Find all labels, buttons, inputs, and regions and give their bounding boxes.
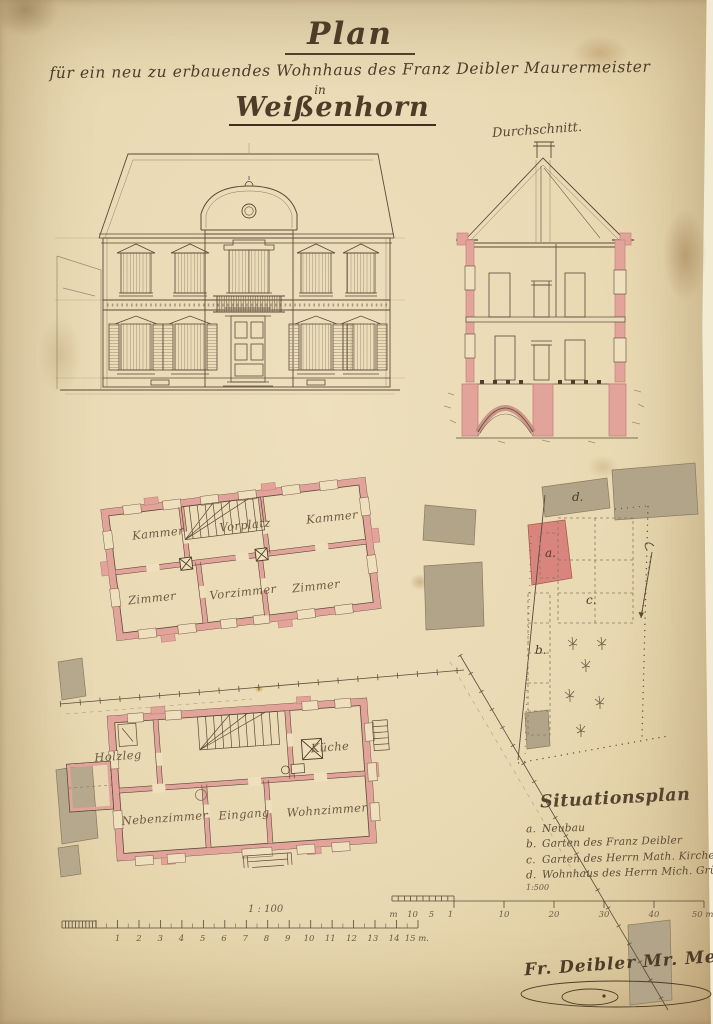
scale-tick-label: 8 bbox=[256, 934, 277, 944]
scale-tick-label: 30 bbox=[579, 910, 629, 920]
scale-tick-label: 13 bbox=[362, 934, 383, 944]
scale-tick-label: 10 bbox=[479, 910, 529, 920]
section-cellar bbox=[444, 384, 644, 443]
room-label-kueche: Küche bbox=[310, 739, 349, 756]
scale-tick-label: 10 bbox=[298, 934, 319, 944]
section-chimney bbox=[533, 142, 555, 158]
legend-item-a: a.Neubau bbox=[526, 819, 712, 836]
scale-tick-label: 5 bbox=[192, 934, 213, 944]
title-town-word: Weißenhorn bbox=[229, 92, 435, 126]
signature-block: Fr. Deibler Mr. Meister bbox=[516, 946, 713, 1018]
garden-trees bbox=[565, 637, 606, 737]
ground-plan-stairs bbox=[197, 711, 279, 750]
scanned-plan-page: { "page": { "title_word": "Plan", "subti… bbox=[0, 0, 713, 1024]
signature-flourish bbox=[516, 974, 713, 1018]
plan-scale-tick-labels: 123456789101112131415 m. bbox=[107, 934, 429, 944]
scale-tick-label: 3 bbox=[150, 934, 171, 944]
site-plan-drawing: a. b. c. d. bbox=[418, 448, 713, 1018]
facade-ground-windows bbox=[103, 308, 390, 386]
scale-tick-label: 20 bbox=[529, 910, 579, 920]
plan-scale-label: 1 : 100 bbox=[248, 904, 283, 915]
exterior-stair bbox=[372, 720, 389, 751]
ground-floor-plan-drawing bbox=[52, 652, 412, 892]
cross-section-drawing bbox=[438, 138, 662, 448]
scale-tick-label: 1 bbox=[441, 910, 460, 920]
page-title: Plan bbox=[0, 16, 700, 52]
facade-upper-windows bbox=[117, 240, 379, 296]
scale-tick-label: 1 bbox=[107, 934, 128, 944]
legend-scale-note: 1:500 bbox=[526, 883, 712, 892]
scale-tick-label: 2 bbox=[128, 934, 149, 944]
scale-tick-label: 9 bbox=[277, 934, 298, 944]
legend-item-b: b.Garten des Franz Deibler bbox=[526, 834, 712, 851]
legend-item-d: d.Wohnhaus des Herrn Mich. Grünwied. bbox=[526, 864, 712, 881]
site-label-a: a. bbox=[545, 546, 556, 560]
scale-tick-label: 14 bbox=[383, 934, 404, 944]
scale-tick-label: 12 bbox=[341, 934, 362, 944]
scale-tick-label: 50 m. bbox=[679, 910, 713, 920]
site-label-c: c. bbox=[586, 593, 597, 607]
facade-elevation-drawing bbox=[55, 138, 405, 403]
title-town: Weißenhorn bbox=[225, 92, 440, 123]
scale-tick-label: 7 bbox=[235, 934, 256, 944]
situationsplan-legend: Situationsplan a.Neubau b.Garten des Fra… bbox=[526, 788, 712, 892]
page-title-word: Plan bbox=[285, 16, 415, 55]
neighbor-buildings bbox=[56, 658, 98, 877]
scale-tick-label: 6 bbox=[213, 934, 234, 944]
scale-tick-label: 11 bbox=[320, 934, 341, 944]
legend-item-c: c.Garten des Herrn Math. Kircher. bbox=[526, 849, 712, 866]
site-scale-major-labels: 1020304050 m. bbox=[479, 910, 713, 920]
upper-floor-plan-drawing bbox=[88, 455, 403, 665]
scale-tick-label: 15 m. bbox=[405, 934, 429, 944]
scale-tick-label: 40 bbox=[629, 910, 679, 920]
site-label-d: d. bbox=[572, 490, 584, 504]
scale-tick-label: 4 bbox=[171, 934, 192, 944]
site-label-b: b. bbox=[535, 643, 547, 657]
